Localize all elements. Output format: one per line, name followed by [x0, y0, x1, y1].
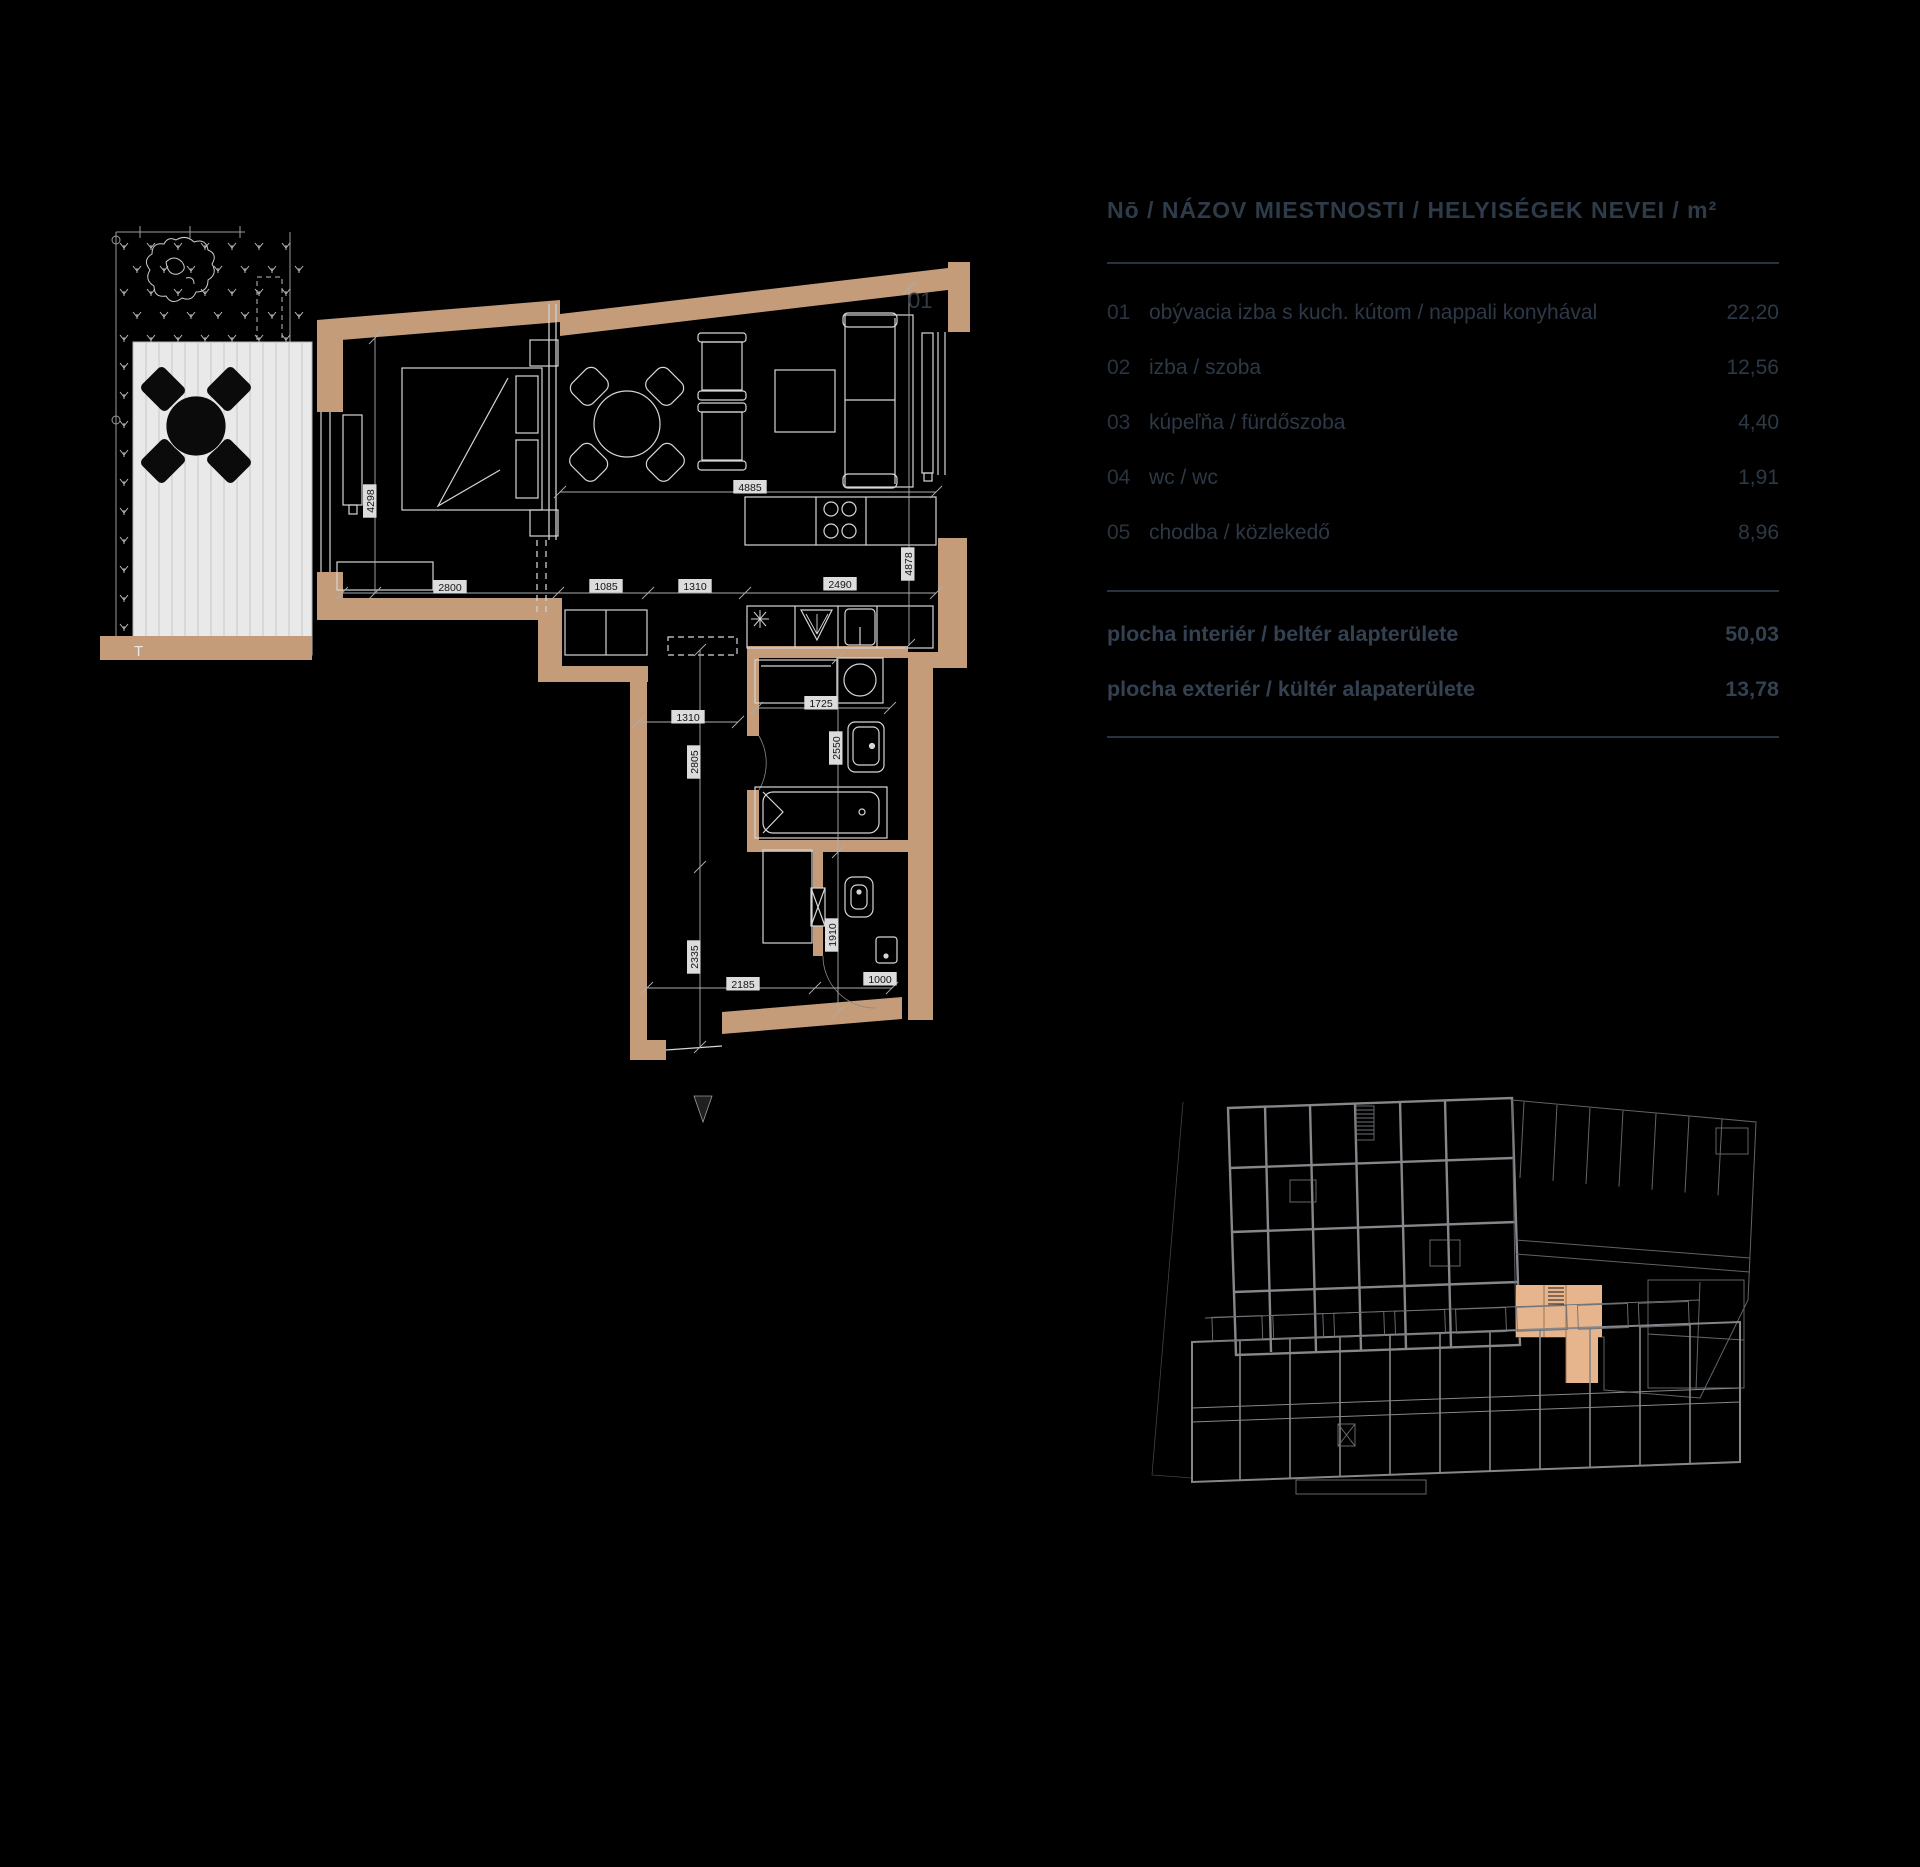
svg-text:2185: 2185	[731, 979, 755, 991]
dimension-label: 1310	[671, 710, 704, 724]
sink-star-icon	[751, 610, 769, 628]
divider-middle	[1107, 590, 1779, 592]
room-area: 12,56	[1726, 356, 1779, 380]
tree-inner	[166, 258, 194, 284]
dimension-label: 1725	[804, 696, 837, 710]
table-row: 02 izba / szoba 12,56	[1107, 346, 1779, 390]
svg-text:4878: 4878	[903, 552, 915, 576]
coffee-table	[775, 370, 835, 432]
room-number: 05	[1107, 521, 1149, 545]
total-interior-row: plocha interiér / beltér alapterülete 50…	[1107, 612, 1779, 656]
dimension-label: 1085	[589, 579, 622, 593]
room-number: 04	[1107, 466, 1149, 490]
total-label: plocha interiér / beltér alapterülete	[1107, 622, 1725, 647]
bathtub-icon	[755, 787, 887, 838]
total-value: 13,78	[1725, 677, 1779, 702]
chair	[642, 364, 687, 409]
svg-text:1910: 1910	[827, 923, 839, 947]
room-name: wc / wc	[1149, 466, 1738, 490]
total-value: 50,03	[1725, 622, 1779, 647]
bed	[402, 368, 542, 510]
divider-bottom	[1107, 736, 1779, 738]
room-table: Nō / NÁZOV MIESTNOSTI / HELYISÉGEK NEVEI…	[1107, 196, 1779, 738]
table-row: 01 obývacia izba s kuch. kútom / nappali…	[1107, 291, 1779, 335]
low-cabinet	[337, 562, 433, 590]
hood-icon	[801, 610, 832, 640]
shaft	[811, 888, 825, 926]
dashed-overhead	[668, 637, 737, 655]
interior-partitions	[537, 304, 556, 616]
site-block-a-stairs	[1290, 1106, 1460, 1266]
svg-text:4298: 4298	[365, 489, 377, 513]
table-row: 03 kúpeľňa / fürdőszoba 4,40	[1107, 401, 1779, 445]
totals: plocha interiér / beltér alapterülete 50…	[1107, 612, 1779, 711]
svg-text:1310: 1310	[683, 581, 707, 593]
chair	[643, 440, 688, 485]
table-row: 04 wc / wc 1,91	[1107, 456, 1779, 500]
blanket-fold	[438, 378, 508, 506]
room-name: obývacia izba s kuch. kútom / nappali ko…	[1149, 301, 1726, 325]
site-plan	[1152, 1098, 1756, 1494]
dimension-label: 2800	[433, 580, 466, 594]
dimension-label: 2550	[829, 731, 843, 764]
wardrobe	[343, 415, 362, 505]
bedroom-furniture	[337, 340, 558, 590]
toilet-icon	[845, 877, 873, 917]
dimension-label: 2335	[687, 940, 701, 973]
terrace-garden: T	[100, 226, 312, 660]
svg-text:2490: 2490	[828, 579, 852, 591]
page: { "table": { "header": "Nō / NÁZOV MIEST…	[0, 0, 1920, 1867]
table-row: 05 chodba / közlekedő 8,96	[1107, 511, 1779, 555]
hob-icon	[824, 502, 856, 538]
room-number: 03	[1107, 411, 1149, 435]
terrace-label: T	[134, 643, 143, 660]
chair	[567, 364, 612, 409]
room-area: 1,91	[1738, 466, 1779, 490]
bathroom	[755, 658, 887, 838]
site-block-c-details	[1205, 1300, 1700, 1494]
dimension-label: 1000	[863, 972, 896, 986]
nightstand	[530, 510, 558, 536]
svg-text:4885: 4885	[738, 482, 762, 494]
room-area: 22,20	[1726, 301, 1779, 325]
sink-icon	[845, 609, 875, 645]
room-area: 8,96	[1738, 521, 1779, 545]
svg-text:2800: 2800	[438, 582, 462, 594]
divider-top	[1107, 262, 1779, 264]
living-furniture	[698, 313, 933, 488]
total-exterior-row: plocha exteriér / kültér alapaterülete 1…	[1107, 667, 1779, 711]
room-name: chodba / közlekedő	[1149, 521, 1738, 545]
planter-dashed	[257, 277, 282, 342]
room-name: kúpeľňa / fürdőszoba	[1149, 411, 1738, 435]
chair	[566, 440, 611, 485]
small-basin-icon	[876, 937, 897, 963]
tv-board	[922, 333, 933, 473]
room-area: 4,40	[1738, 411, 1779, 435]
table-header: Nō / NÁZOV MIESTNOSTI / HELYISÉGEK NEVEI…	[1107, 196, 1779, 224]
dimension-label: 2185	[726, 977, 759, 991]
dimension-label: 2490	[823, 577, 856, 591]
svg-text:2550: 2550	[831, 736, 843, 760]
svg-text:1085: 1085	[594, 581, 618, 593]
svg-text:1000: 1000	[868, 974, 892, 986]
room-number: 01	[1107, 301, 1149, 325]
site-highlight-unit	[1516, 1285, 1602, 1383]
washing-machine-icon	[837, 658, 883, 703]
pillow	[516, 376, 538, 433]
nightstand	[530, 340, 558, 366]
total-label: plocha exteriér / kültér alapaterülete	[1107, 677, 1725, 702]
dimension-label: 4298	[363, 484, 377, 517]
svg-text:2805: 2805	[689, 750, 701, 774]
wc-room	[845, 877, 897, 963]
room-number: 01	[908, 288, 932, 313]
armchair	[702, 342, 742, 390]
dimension-label: 1910	[825, 918, 839, 951]
svg-text:1725: 1725	[809, 698, 833, 710]
room-number: 02	[1107, 356, 1149, 380]
svg-text:1310: 1310	[676, 712, 700, 724]
site-block-b	[1512, 1100, 1756, 1398]
kitchen-counter-2	[747, 606, 933, 648]
svg-text:2335: 2335	[689, 945, 701, 969]
room-name: izba / szoba	[1149, 356, 1726, 380]
terrace-wall	[100, 636, 312, 660]
armchair	[702, 412, 742, 460]
kitchen-counter	[745, 497, 936, 545]
dimension-label: 4885	[733, 480, 766, 494]
storage-closet	[763, 850, 812, 943]
dimension-label: 2805	[687, 745, 701, 778]
dimension-label: 1310	[678, 579, 711, 593]
pillow	[516, 440, 538, 498]
entrance-arrow-icon	[694, 1096, 712, 1122]
room-rows: 01 obývacia izba s kuch. kútom / nappali…	[1107, 291, 1779, 555]
dining-set	[566, 364, 687, 485]
dining-table	[594, 391, 660, 457]
sofa	[843, 313, 913, 488]
washbasin-icon	[848, 722, 884, 772]
dimension-label: 4878	[901, 547, 915, 580]
apartment-walls	[317, 262, 970, 1060]
